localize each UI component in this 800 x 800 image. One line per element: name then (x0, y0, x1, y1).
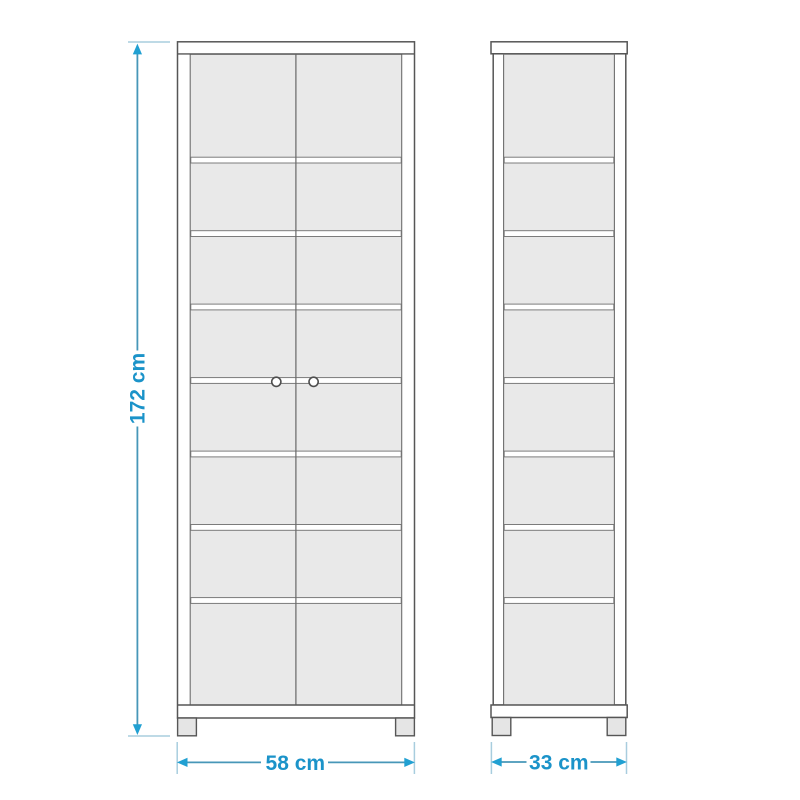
svg-text:58 cm: 58 cm (266, 752, 326, 775)
svg-text:172 cm: 172 cm (127, 353, 150, 424)
svg-text:33 cm: 33 cm (529, 752, 589, 775)
